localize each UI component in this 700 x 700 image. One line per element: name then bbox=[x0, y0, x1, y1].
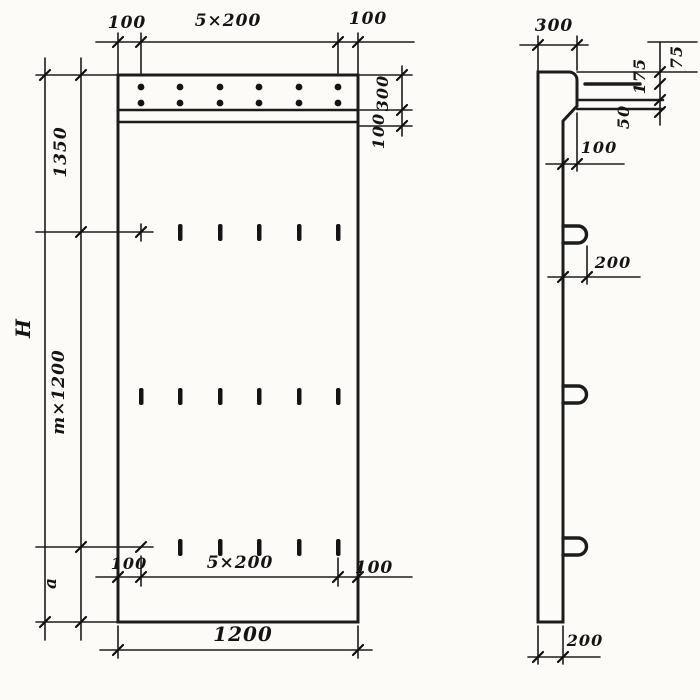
lifting-loops bbox=[563, 226, 587, 555]
dim-inner-right-100: 100 bbox=[355, 558, 394, 578]
dim-loop-200: 200 bbox=[594, 253, 631, 272]
dim-edge-75: 75 bbox=[667, 45, 686, 69]
top-dimension-lines bbox=[96, 33, 414, 73]
side-view: 300 75 175 50 100 bbox=[520, 16, 697, 664]
dim-top-left-100: 100 bbox=[108, 13, 147, 33]
front-view: H 1350 m×1200 a 100 5×200 100 bbox=[11, 9, 414, 658]
dim-edge-175: 175 bbox=[630, 58, 649, 94]
edge-chain-dimension-lines bbox=[655, 42, 665, 125]
dim-inner-5x200: 5×200 bbox=[207, 553, 274, 573]
panel-drawing: H 1350 m×1200 a 100 5×200 100 bbox=[0, 0, 700, 700]
dim-bottom-segment-a: a bbox=[41, 577, 61, 589]
lifting-loop bbox=[563, 386, 587, 403]
lifting-loop bbox=[563, 226, 587, 243]
dim-middle-segment-m1200: m×1200 bbox=[49, 349, 69, 435]
technical-drawing-sheet: H 1350 m×1200 a 100 5×200 100 bbox=[0, 0, 700, 700]
dim-top-right-100: 100 bbox=[349, 9, 388, 29]
dim-cap-300: 300 bbox=[535, 16, 574, 36]
dim-thickness-200: 200 bbox=[566, 631, 603, 650]
cap-dimension-lines bbox=[520, 36, 588, 70]
slot-row-top bbox=[178, 224, 341, 241]
dim-ledge-100: 100 bbox=[581, 138, 617, 157]
slot-row-middle bbox=[139, 388, 341, 405]
dim-band-300: 300 bbox=[373, 75, 392, 111]
dim-overall-height: H bbox=[11, 318, 35, 339]
dim-inner-left-100: 100 bbox=[111, 554, 147, 573]
dim-below-band-100: 100 bbox=[369, 113, 388, 149]
dim-edge-50: 50 bbox=[614, 105, 633, 129]
dim-width-1200: 1200 bbox=[213, 622, 273, 646]
anchor-dots bbox=[138, 84, 342, 107]
panel-outline bbox=[118, 75, 358, 622]
dim-top-5x200: 5×200 bbox=[195, 11, 262, 31]
lifting-loop bbox=[563, 538, 587, 555]
dim-top-segment-1350: 1350 bbox=[51, 126, 71, 177]
